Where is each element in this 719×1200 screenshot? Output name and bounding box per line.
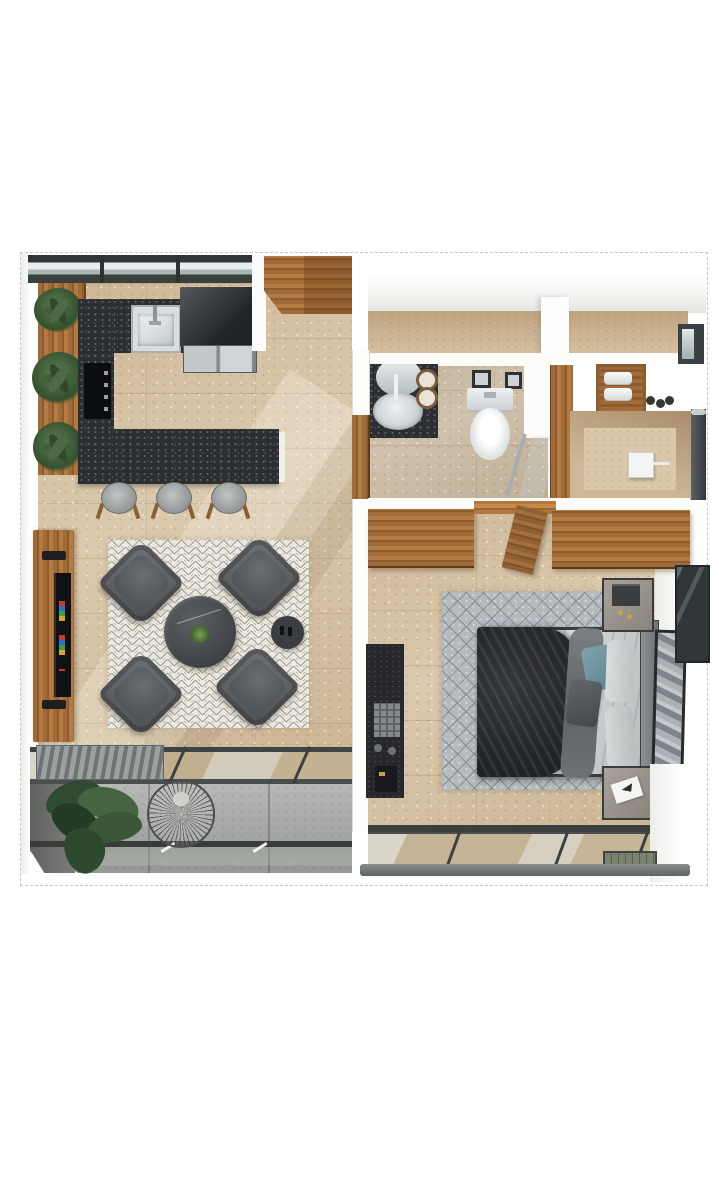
- door-track: [368, 825, 668, 832]
- nightstand: [602, 578, 654, 632]
- coffee-table: [164, 596, 236, 668]
- toilet-bowl: [470, 408, 510, 460]
- stool-seat: [101, 482, 137, 514]
- storage-crate: [374, 703, 400, 737]
- bathroom-wall: [524, 364, 551, 438]
- kitchen-island: [78, 429, 279, 484]
- decor-tray: [375, 766, 397, 792]
- candle: [374, 744, 382, 752]
- cooktop-knobs: [104, 371, 108, 411]
- wire-lounge-chair: [147, 780, 215, 848]
- bathroom-back-wall: [368, 311, 688, 353]
- bar-stool: [210, 482, 246, 513]
- towel-roll: [416, 387, 438, 409]
- glass-cabinet: [675, 565, 710, 663]
- shower-head: [628, 452, 654, 478]
- shower-arm: [652, 462, 670, 465]
- toilet: [467, 388, 513, 462]
- wall-segment: [252, 255, 266, 351]
- window-frame-bars: [28, 255, 260, 283]
- candle: [388, 747, 396, 755]
- bedroom-dresser: [366, 644, 404, 798]
- perfume-bottles: [618, 610, 623, 615]
- bottle: [656, 399, 665, 408]
- wardrobe-right: [552, 510, 690, 569]
- side-table: [271, 616, 304, 649]
- wardrobe-left: [368, 509, 474, 568]
- white-pillow: [605, 640, 635, 703]
- panel-slot: [42, 700, 66, 709]
- flush-button: [484, 392, 496, 398]
- white-pillow: [604, 705, 635, 768]
- pillar-cap: [691, 409, 706, 415]
- island-edge: [279, 432, 285, 482]
- window-pillar: [691, 409, 706, 503]
- railing-glass: [75, 847, 352, 865]
- wall-picture: [472, 370, 491, 388]
- gray-pillow: [565, 678, 603, 728]
- bar-stool: [155, 482, 191, 513]
- wall-picture: [505, 372, 522, 389]
- nightstand: [602, 766, 654, 820]
- marble-vein: [177, 609, 221, 624]
- corner-window: [678, 324, 704, 364]
- panel-slot: [42, 551, 66, 560]
- kitchen-sink: [131, 305, 181, 353]
- wall-partition: [541, 297, 569, 355]
- floorplan-render: [0, 0, 719, 1200]
- vanity-faucet: [394, 374, 398, 400]
- table-plant: [190, 626, 210, 643]
- towel-niche: [596, 364, 646, 414]
- potted-plant: [34, 288, 82, 332]
- stool-seat: [156, 482, 192, 514]
- bar-stool: [100, 482, 136, 513]
- faucet-head: [149, 321, 161, 325]
- wall-wood-strip: [352, 415, 370, 499]
- bottle: [646, 396, 655, 405]
- bedroom-balcony-railing: [360, 864, 690, 876]
- steel-oven: [183, 345, 257, 373]
- potted-plant: [33, 422, 83, 472]
- book: [611, 776, 644, 804]
- folded-towel: [604, 372, 632, 384]
- cooktop: [84, 363, 111, 419]
- table-lamp: [612, 584, 640, 606]
- wall-shading: [368, 253, 706, 313]
- louvered-bench: [36, 745, 164, 780]
- bottle: [665, 396, 674, 405]
- remote-controls: [280, 626, 284, 635]
- door-shadow: [304, 256, 352, 314]
- entry-wood-door: [264, 256, 352, 314]
- tv-screen: [54, 573, 71, 697]
- kitchen-window-strip: [28, 255, 260, 283]
- folded-towel: [604, 388, 632, 400]
- stool-seat: [211, 482, 247, 514]
- range-hood-cabinet: [180, 287, 253, 347]
- tv-app-tiles: [59, 601, 65, 671]
